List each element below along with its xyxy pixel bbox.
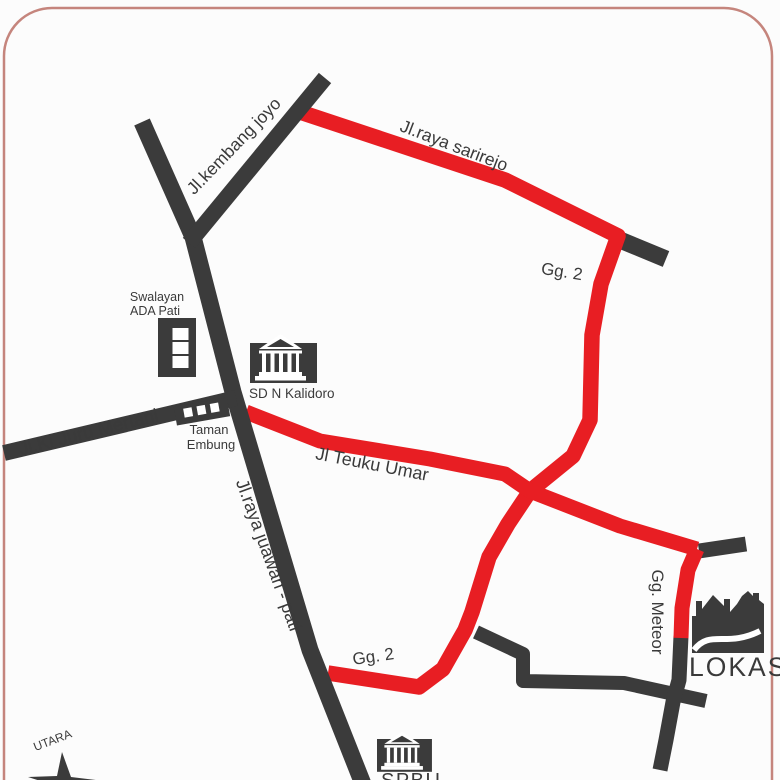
- store-icon: [158, 318, 196, 377]
- map-canvas: Jl.kembang joyo Jl.raya sarirejo Gg. 2 J…: [0, 0, 780, 780]
- house-icon: [692, 591, 764, 653]
- route-sarirejo-gg2: [300, 112, 618, 687]
- place-label-taman-line1: Taman: [189, 422, 228, 437]
- road-label-ki-juru-mertani: Jl.Ki Juru Mertani: [17, 404, 161, 459]
- place-label-lokasi: LOKASI: [689, 652, 780, 682]
- place-label-taman-line2: Embung: [187, 437, 235, 452]
- school-icon: [250, 334, 317, 383]
- place-label-swalayan-line1: Swalayan: [130, 290, 184, 304]
- route-teuku-umar: [246, 412, 697, 549]
- road-label-gg2-top: Gg. 2: [540, 259, 584, 284]
- map-frame-border: [4, 8, 772, 780]
- road-gg-meteor-lower: [660, 636, 681, 770]
- compass-label-utara: UTARA: [31, 727, 73, 754]
- place-label-spbu: SPBU: [381, 770, 441, 780]
- road-label-gg2-bottom: Gg. 2: [351, 644, 395, 669]
- place-label-sd-n-kalidoro: SD N Kalidoro: [249, 386, 335, 401]
- compass-star-icon: [28, 752, 104, 780]
- poi-icons: [28, 318, 764, 780]
- road-sarirejo-stub: [620, 240, 666, 259]
- road-labels: Jl.kembang joyo Jl.raya sarirejo Gg. 2 J…: [17, 93, 667, 668]
- gas-station-icon: [377, 732, 432, 772]
- place-label-swalayan-line2: ADA Pati: [130, 304, 180, 318]
- road-label-gg-meteor: Gg. Meteor: [648, 569, 667, 654]
- road-teuku-stub: [699, 544, 746, 551]
